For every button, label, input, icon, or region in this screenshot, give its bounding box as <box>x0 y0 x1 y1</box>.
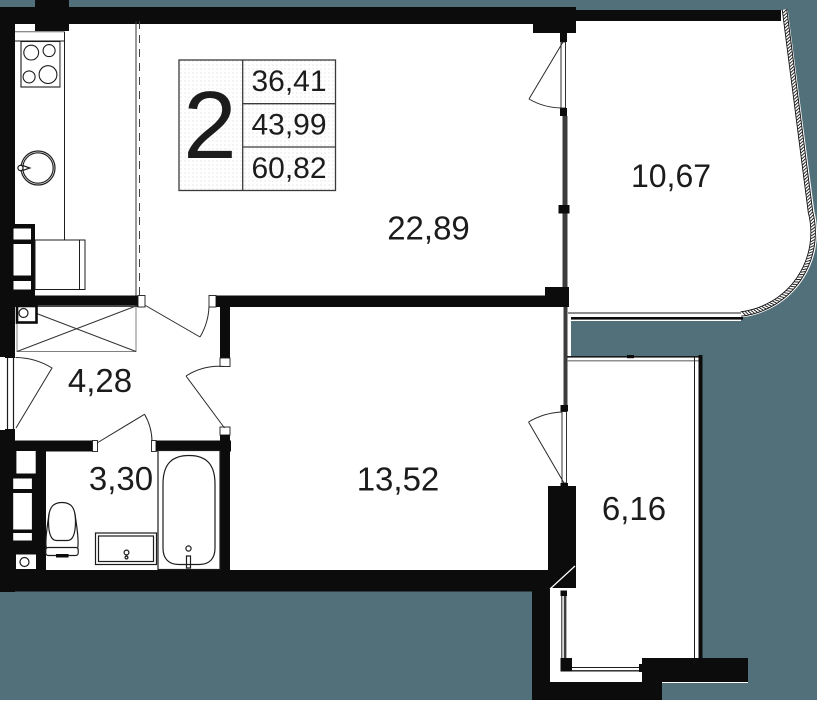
svg-text:13,52: 13,52 <box>357 461 440 498</box>
svg-text:4,28: 4,28 <box>68 362 132 399</box>
svg-text:43,99: 43,99 <box>251 109 326 142</box>
svg-text:60,82: 60,82 <box>251 152 326 185</box>
svg-text:36,41: 36,41 <box>251 65 326 98</box>
svg-text:6,16: 6,16 <box>602 490 666 527</box>
svg-text:3,30: 3,30 <box>89 460 153 497</box>
svg-text:22,89: 22,89 <box>387 210 470 247</box>
svg-text:10,67: 10,67 <box>631 158 711 194</box>
svg-text:2: 2 <box>183 72 236 179</box>
